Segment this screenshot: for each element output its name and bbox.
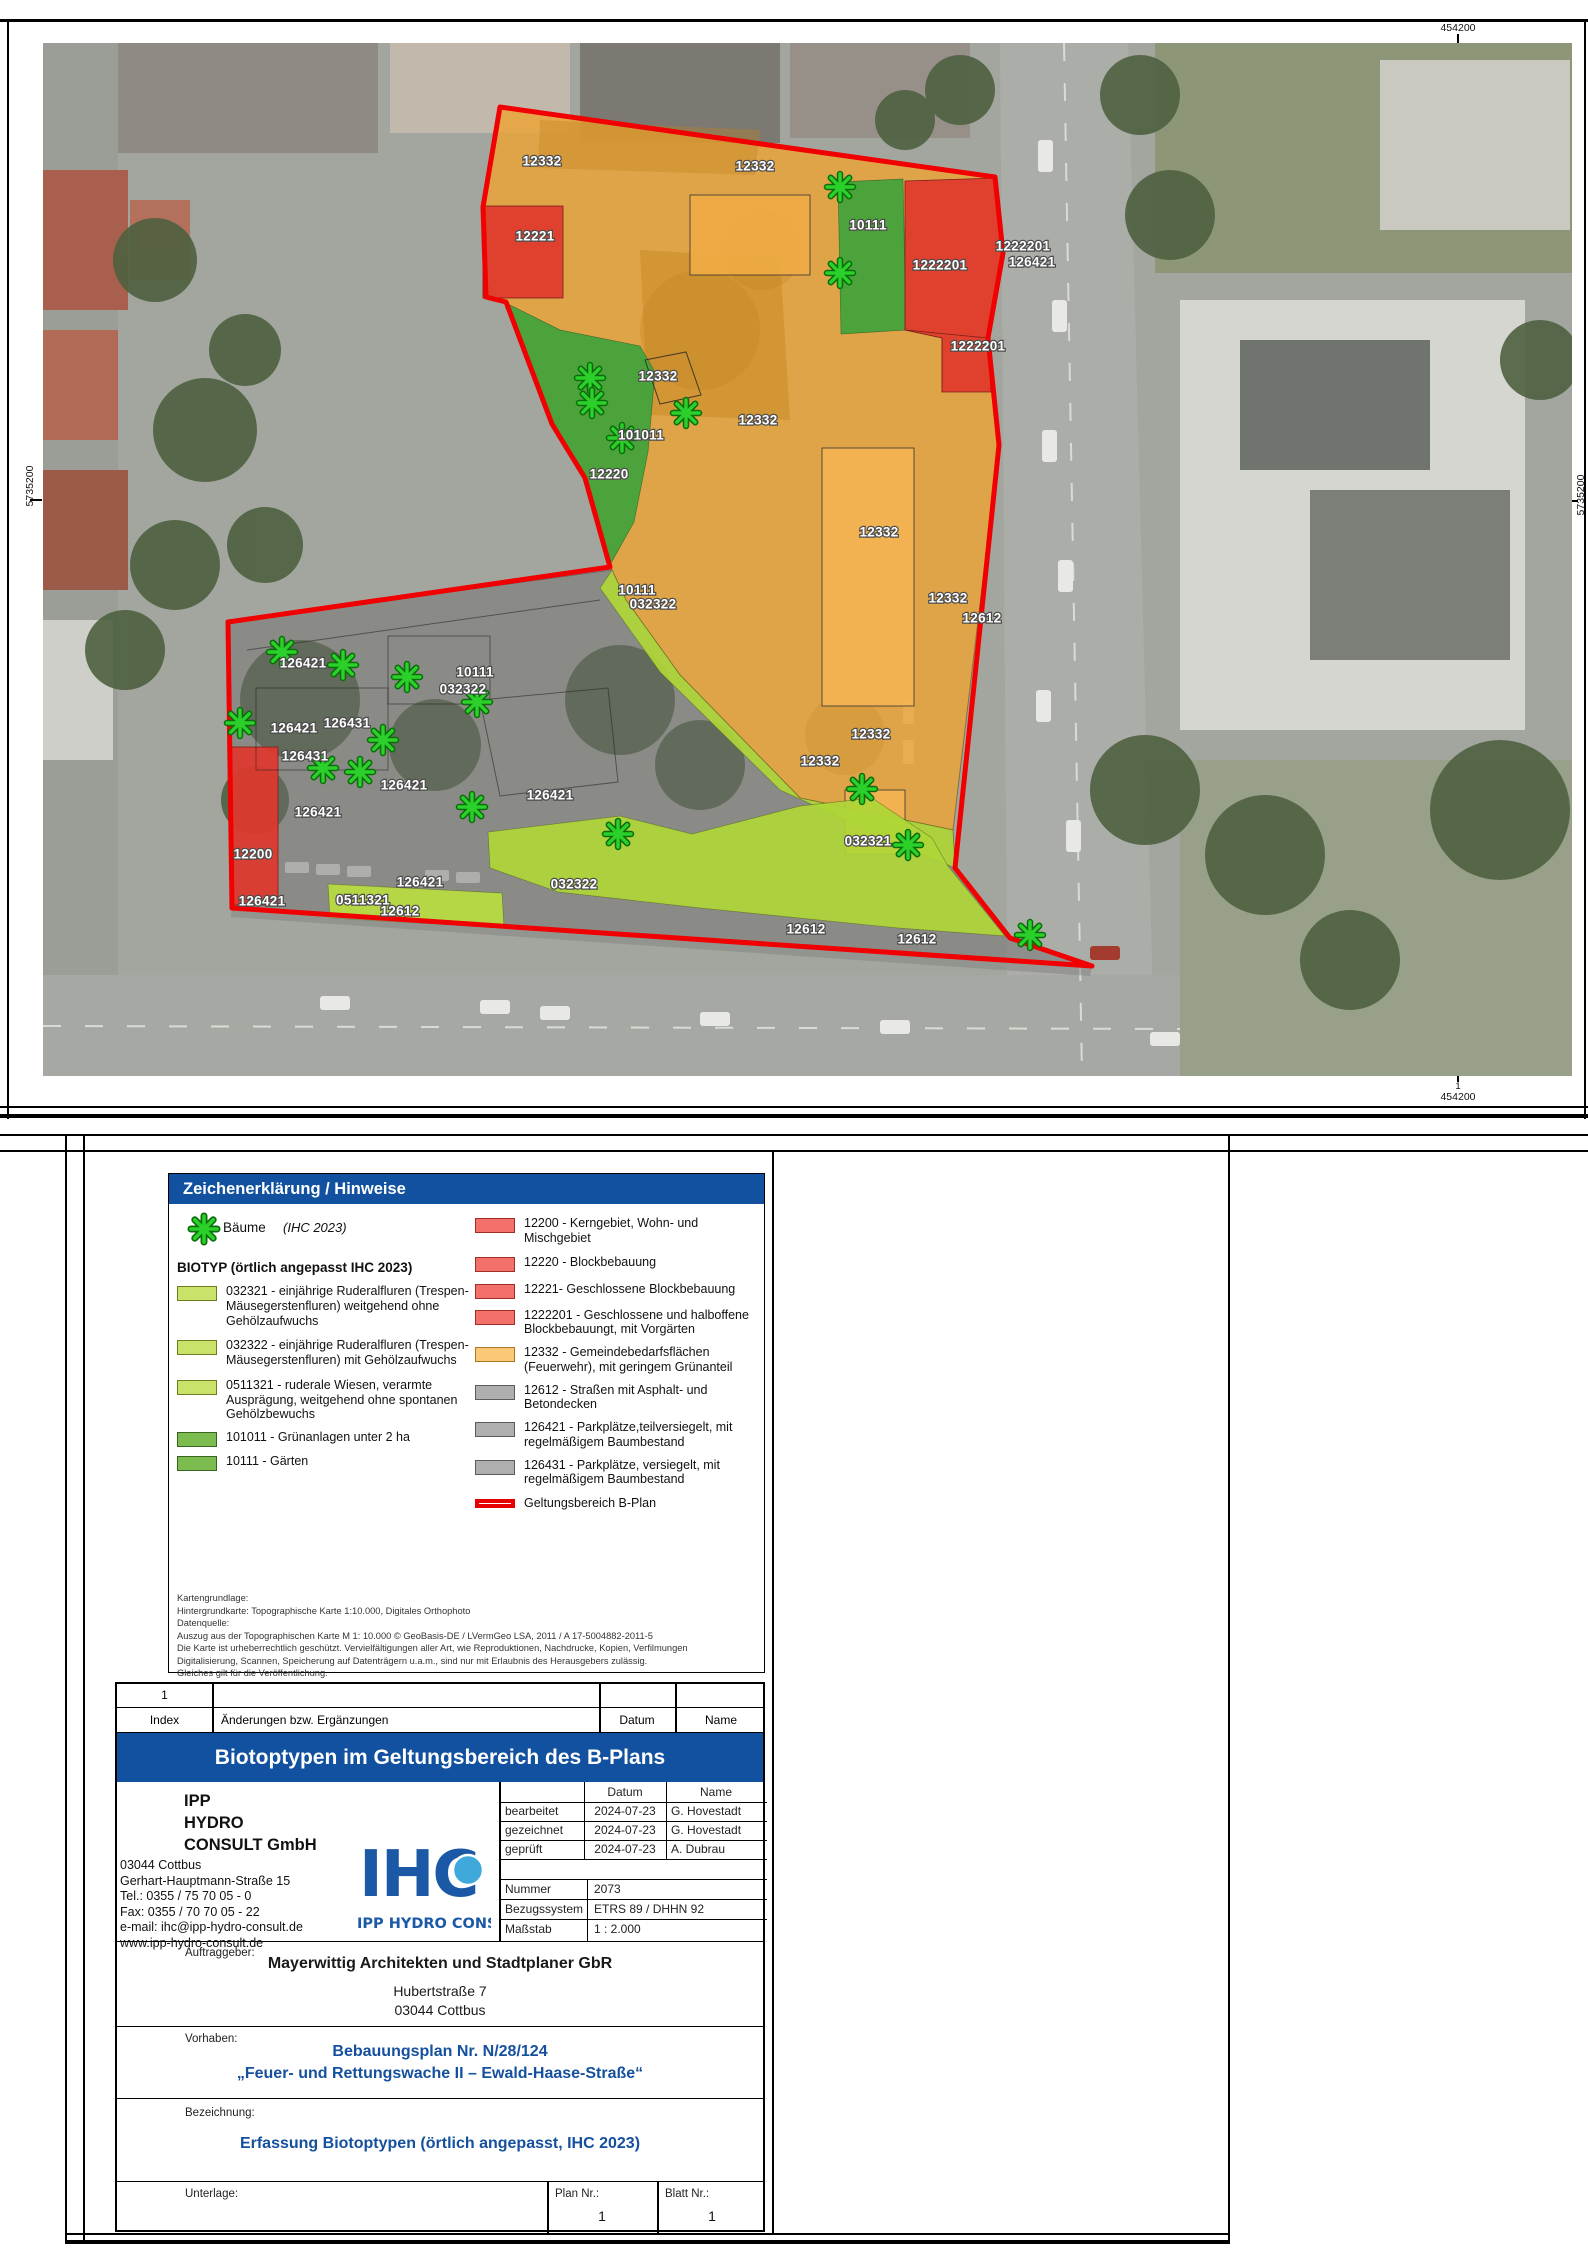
area-label-126421: 126421 [397,875,444,890]
plan-number-value: 1 [547,2208,657,2224]
legend-item: 12220 - Blockbebauung [475,1255,760,1272]
footer-row: Unterlage: Plan Nr.: 1 Blatt Nr.: 1 [117,2182,763,2234]
approval-cell: Name [666,1783,766,1802]
area-label-1222201: 1222201 [996,239,1051,254]
area-label-032322: 032322 [440,682,487,697]
legend-swatch-boundary [475,1499,515,1508]
area-label-126421: 126421 [239,894,286,909]
area-label-1222201: 1222201 [951,339,1006,354]
area-label-032321: 032321 [845,834,892,849]
tree-legend-label: Bäume [223,1220,266,1235]
area-label-12332: 12332 [859,525,898,540]
grid-label-left: 5735200 [24,458,36,514]
approval-cell: 1 : 2.000 [594,1920,764,1939]
approval-cell: 2024-07-23 [584,1802,666,1821]
area-label-126421: 126421 [280,656,327,671]
area-label-10111: 10111 [849,218,887,233]
tree-icon [849,776,875,802]
tree-icon [394,664,420,690]
legend-item: 126431 - Parkplätze, versiegelt, mit reg… [475,1458,760,1488]
company-address: 03044 CottbusGerhart-Hauptmann-Straße 15… [120,1858,303,1951]
legend-left-column: 032321 - einjährige Ruderalfluren (Tresp… [177,1284,473,1471]
tree-icon [227,710,253,736]
approval-cell: Datum [584,1783,666,1802]
area-label-126421: 126421 [527,788,574,803]
legend-swatch-red [475,1257,515,1272]
tree-icon [827,260,853,286]
grid-label-right: 5735200 [1575,467,1587,523]
tree-icon [579,390,605,416]
company-address-line: Tel.: 0355 / 75 70 05 - 0 [120,1889,303,1905]
grid-label-bottom: 454200 [1432,1091,1484,1103]
client-row: Auftraggeber: Mayerwittig Architekten un… [117,1942,763,2027]
area-label-12220: 12220 [589,467,628,482]
sheet-title: Biotoptypen im Geltungsbereich des B-Pla… [117,1733,763,1782]
index-col-label: Index [117,1713,212,1727]
area-label-12612: 12612 [786,922,825,937]
project-line2: „Feuer- und Rettungswache II – Ewald-Haa… [117,2065,763,2083]
legend-item: 12332 - Gemeindebedarfsflächen (Feuerweh… [475,1345,760,1375]
area-label-032322: 032322 [630,597,677,612]
sheet-top-line1 [0,1134,1588,1136]
legend-item-text: 12612 - Straßen mit Asphalt- und Betonde… [524,1383,760,1413]
map-left-neatline [7,19,9,1119]
source-note-line: Hintergrundkarte: Topographische Karte 1… [177,1605,688,1618]
approval-cell: 2024-07-23 [584,1840,666,1859]
index-date-col-label: Datum [599,1713,675,1727]
svg-text:IPP HYDRO CONSULT: IPP HYDRO CONSULT [357,1916,491,1932]
legend-item: 126421 - Parkplätze,teilversiegelt, mit … [475,1420,760,1450]
area-label-10111: 10111 [618,583,656,598]
source-note-line: Kartengrundlage: [177,1592,688,1605]
legend-item-text: 126431 - Parkplätze, versiegelt, mit reg… [524,1458,760,1488]
aerial-biotope-map: 1233212332122211011112222011222201126421… [43,43,1572,1076]
area-label-126421: 126421 [295,805,342,820]
description-label: Bezeichnung: [185,2107,255,2119]
approval-cell: 2024-07-23 [584,1821,666,1840]
legend-item-text: 12200 - Kerngebiet, Wohn- und Mischgebie… [524,1216,760,1246]
legend-item-text: 12220 - Blockbebauung [524,1255,656,1270]
legend-item-text: 101011 - Grünanlagen unter 2 ha [226,1430,410,1445]
index-row-1: 1 [117,1684,763,1708]
legend-item: 1222201 - Geschlossene und halboffene Bl… [475,1308,760,1338]
sheet-number-label: Blatt Nr.: [665,2188,709,2200]
legend-header: Zeichenerklärung / Hinweise [169,1174,764,1204]
index-entry-number: 1 [117,1688,212,1702]
area-label-12332: 12332 [735,159,774,174]
legend-item-text: 0511321 - ruderale Wiesen, verarmte Ausp… [226,1378,473,1422]
description-row: Bezeichnung: Erfassung Biotoptypen (örtl… [117,2099,763,2182]
sheet-left-line1 [65,1134,67,2244]
area-label-12332: 12332 [522,154,561,169]
grid-label-top: 454200 [1432,22,1484,34]
area-label-126421: 126421 [1009,255,1056,270]
legend-right-column: 12200 - Kerngebiet, Wohn- und Mischgebie… [475,1216,760,1511]
legend-swatch-lightgreen [177,1286,217,1301]
area-label-10111: 10111 [456,665,494,680]
description-text: Erfassung Biotoptypen (örtlich angepasst… [117,2135,763,2153]
tree-icon [895,832,921,858]
title-block: 1 Index Änderungen bzw. Ergänzungen Datu… [115,1682,765,2232]
legend-swatch-red [475,1218,515,1233]
client-city: 03044 Cottbus [117,2002,763,2018]
map-bottom-line-thick [0,1114,1588,1118]
plan-sheet: 454200 1 454200 5735200 5735200 [0,0,1588,2251]
legend-item-text: 12221- Geschlossene Blockbebauung [524,1282,735,1297]
area-label-12332: 12332 [638,369,677,384]
map-right-neatline [1584,19,1586,1119]
legend-swatch-lightgreen [177,1340,217,1355]
legend-item: 032321 - einjährige Ruderalfluren (Tresp… [177,1284,473,1328]
company-name: IPP HYDRO CONSULT GmbH [184,1790,317,1856]
legend-swatch-red [475,1284,515,1299]
area-label-12221: 12221 [515,229,554,244]
sheet-right-line [1228,1134,1230,2244]
tree-icon [370,727,396,753]
source-note-line: Digitalisierung, Scannen, Speicherung au… [177,1655,688,1668]
ihc-logo: IHC IPP HYDRO CONSULT [355,1834,491,1945]
approval-cell: A. Dubrau [671,1840,766,1859]
area-label-12200: 12200 [233,847,272,862]
legend-swatch-red [475,1310,515,1325]
area-label-12612: 12612 [380,904,419,919]
map-top-neatline [0,19,1588,22]
area-label-101011: 101011 [618,428,664,443]
tree-icon [827,174,853,200]
sheet-top-line2 [0,1150,1588,1152]
project-row: Vorhaben: Bebauungsplan Nr. N/28/124 „Fe… [117,2027,763,2099]
area-label-126431: 126431 [324,716,371,731]
approval-cell: G. Hovestadt [671,1802,766,1821]
tree-icon [1017,922,1043,948]
tree-legend-icon [187,1212,221,1251]
legend-swatch-gray [475,1422,515,1437]
area-label-126431: 126431 [282,749,329,764]
legend-swatch-green [177,1456,217,1471]
area-label-126421: 126421 [271,721,318,736]
project-line1: Bebauungsplan Nr. N/28/124 [117,2043,763,2061]
tree-icon [673,400,699,426]
tree-icon [330,652,356,678]
area-label-1222201: 1222201 [913,258,968,273]
legend-item-text: Geltungsbereich B-Plan [524,1496,656,1511]
legend-item-text: 10111 - Gärten [226,1454,308,1469]
sheet-number-value: 1 [657,2208,767,2224]
approval-cell: bearbeitet [505,1802,583,1821]
area-label-126421: 126421 [381,778,428,793]
sheet-inner-right-line [772,1151,774,2233]
index-name-col-label: Name [675,1713,767,1727]
legend-item-text: 032321 - einjährige Ruderalfluren (Tresp… [226,1284,473,1328]
legend-item: 032322 - einjährige Ruderalfluren (Tresp… [177,1338,473,1368]
client-street: Hubertstraße 7 [117,1983,763,1999]
legend-item: 12221- Geschlossene Blockbebauung [475,1282,760,1299]
company-address-line: 03044 Cottbus [120,1858,303,1874]
legend-swatch-gray [475,1385,515,1400]
doc-label: Unterlage: [185,2188,238,2200]
changes-col-label: Änderungen bzw. Ergänzungen [221,1713,388,1727]
source-note-line: Gleiches gilt für die Veröffentlichung. [177,1667,688,1680]
approval-cell: Nummer [505,1880,585,1899]
tree-icon [459,794,485,820]
legend-item: 10111 - Gärten [177,1454,473,1471]
source-note-line: Auszug aus der Topographischen Karte M 1… [177,1630,688,1643]
legend-box: Zeichenerklärung / Hinweise Bäume (IHC 2… [168,1173,765,1673]
biotype-heading: BIOTYP (örtlich angepasst IHC 2023) [177,1260,412,1275]
index-row-header: Index Änderungen bzw. Ergänzungen Datum … [117,1708,763,1733]
legend-swatch-gray [475,1460,515,1475]
source-note-line: Datenquelle: [177,1617,688,1630]
approval-cell: geprüft [505,1840,583,1859]
client-name: Mayerwittig Architekten und Stadtplaner … [117,1955,763,1973]
company-address-line: e-mail: ihc@ipp-hydro-consult.de [120,1920,303,1936]
sheet-bottom-line2 [65,2240,1230,2244]
company-address-line: Fax: 0355 / 70 70 05 - 22 [120,1905,303,1921]
legend-item: Geltungsbereich B-Plan [475,1496,760,1511]
legend-item: 0511321 - ruderale Wiesen, verarmte Ausp… [177,1378,473,1422]
area-label-12332: 12332 [851,727,890,742]
approval-cell: 2073 [594,1880,764,1899]
legend-item-text: 1222201 - Geschlossene und halboffene Bl… [524,1308,760,1338]
legend-item: 12612 - Straßen mit Asphalt- und Betonde… [475,1383,760,1413]
area-label-12332: 12332 [738,413,777,428]
area-label-12332: 12332 [928,591,967,606]
sheet-left-line2 [83,1134,85,2244]
approval-cell: Maßstab [505,1920,585,1939]
legend-item-text: 126421 - Parkplätze,teilversiegelt, mit … [524,1420,760,1450]
legend-swatch-lightgreen [177,1380,217,1395]
approval-cell: ETRS 89 / DHHN 92 [594,1900,764,1919]
approval-cell: Bezugssystem [505,1900,585,1919]
area-label-12612: 12612 [897,932,936,947]
legend-item: 101011 - Grünanlagen unter 2 ha [177,1430,473,1447]
plan-number-label: Plan Nr.: [555,2188,599,2200]
approval-table: DatumNamebearbeitet2024-07-23G. Hovestad… [499,1782,767,1942]
area-label-032322: 032322 [551,877,598,892]
approval-cell: G. Hovestadt [671,1821,766,1840]
company-address-line: Gerhart-Hauptmann-Straße 15 [120,1874,303,1890]
grid-tick-top [1457,34,1459,43]
tree-icon [577,365,603,391]
tree-legend-note: (IHC 2023) [283,1220,347,1235]
company-row: IPP HYDRO CONSULT GmbH 03044 CottbusGerh… [117,1782,763,1942]
tree-icon [347,759,373,785]
area-label-12612: 12612 [962,611,1001,626]
legend-item-text: 12332 - Gemeindebedarfsflächen (Feuerweh… [524,1345,760,1375]
legend-item: 12200 - Kerngebiet, Wohn- und Mischgebie… [475,1216,760,1246]
tree-icon [605,821,631,847]
approval-cell: gezeichnet [505,1821,583,1840]
legend-swatch-green [177,1432,217,1447]
source-note-line: Die Karte ist urheberrechtlich geschützt… [177,1642,688,1655]
map-bottom-line-thin [0,1106,1588,1108]
grid-tick-left [30,499,42,501]
map-source-note: Kartengrundlage:Hintergrundkarte: Topogr… [177,1592,688,1680]
area-label-12332: 12332 [800,754,839,769]
legend-item-text: 032322 - einjährige Ruderalfluren (Tresp… [226,1338,473,1368]
legend-swatch-orange [475,1347,515,1362]
